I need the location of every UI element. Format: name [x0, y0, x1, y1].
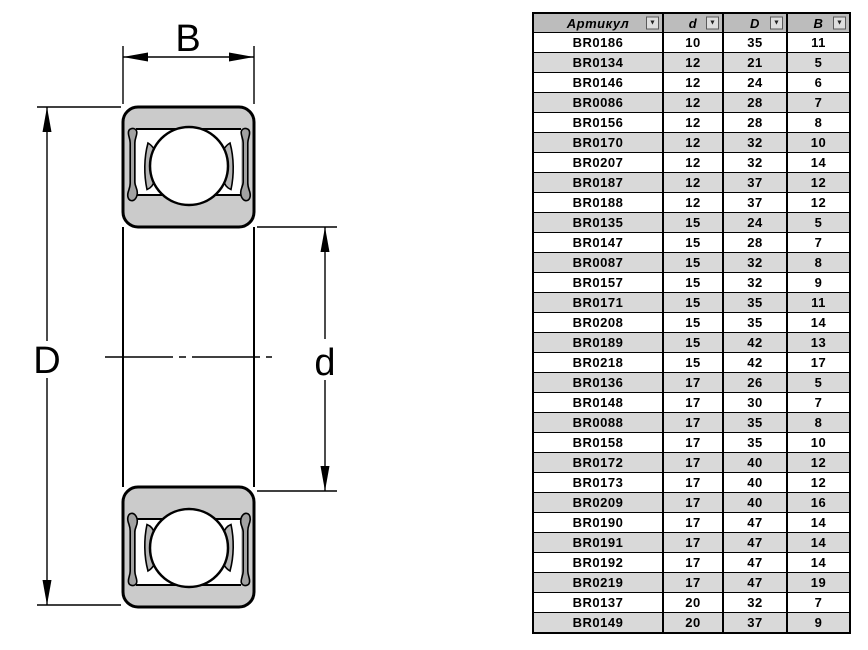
cell-value: 28	[723, 93, 787, 113]
cell-article: BR0192	[533, 553, 663, 573]
cell-value: 17	[663, 453, 723, 473]
cell-value: 35	[723, 293, 787, 313]
cell-article: BR0148	[533, 393, 663, 413]
cell-article: BR0158	[533, 433, 663, 453]
cell-value: 21	[723, 53, 787, 73]
cell-value: 12	[787, 173, 850, 193]
cell-value: 6	[787, 73, 850, 93]
cell-article: BR0171	[533, 293, 663, 313]
cell-article: BR0189	[533, 333, 663, 353]
cell-article: BR0156	[533, 113, 663, 133]
cell-value: 35	[723, 413, 787, 433]
chevron-down-icon: ▼	[836, 20, 843, 27]
bearing-diagram: B D d	[0, 0, 520, 650]
page: B D d	[0, 0, 868, 650]
cell-value: 24	[723, 73, 787, 93]
cell-value: 7	[787, 93, 850, 113]
table-row: BR013515245	[533, 213, 850, 233]
cell-article: BR0207	[533, 153, 663, 173]
cell-article: BR0087	[533, 253, 663, 273]
cell-value: 17	[663, 373, 723, 393]
cell-value: 26	[723, 373, 787, 393]
cell-value: 17	[663, 573, 723, 593]
cell-article: BR0170	[533, 133, 663, 153]
cell-value: 35	[723, 33, 787, 53]
cell-value: 8	[787, 113, 850, 133]
cell-article: BR0149	[533, 613, 663, 634]
table-row: BR0188123712	[533, 193, 850, 213]
table-row: BR0189154213	[533, 333, 850, 353]
column-header-d: d▼	[663, 13, 723, 33]
cell-value: 11	[787, 33, 850, 53]
cell-value: 8	[787, 413, 850, 433]
cell-value: 15	[663, 313, 723, 333]
cell-value: 15	[663, 253, 723, 273]
cell-value: 17	[663, 473, 723, 493]
cell-article: BR0136	[533, 373, 663, 393]
cell-value: 32	[723, 153, 787, 173]
cell-value: 15	[663, 333, 723, 353]
cell-value: 47	[723, 533, 787, 553]
cell-article: BR0187	[533, 173, 663, 193]
table-row: BR0191174714	[533, 533, 850, 553]
cell-value: 10	[787, 433, 850, 453]
bearing-diagram-svg: B D d	[0, 0, 520, 650]
table-row: BR014612246	[533, 73, 850, 93]
dimension-D: D	[33, 107, 121, 605]
arrowhead-up-icon	[321, 227, 330, 252]
table-row: BR0190174714	[533, 513, 850, 533]
arrowhead-down-icon	[321, 466, 330, 491]
table-row: BR015612288	[533, 113, 850, 133]
cell-value: 40	[723, 493, 787, 513]
cell-value: 47	[723, 573, 787, 593]
cell-article: BR0157	[533, 273, 663, 293]
cell-value: 7	[787, 393, 850, 413]
spec-table-header: Артикул▼d▼D▼B▼	[533, 13, 850, 33]
cell-value: 9	[787, 273, 850, 293]
cell-value: 15	[663, 353, 723, 373]
cell-value: 7	[787, 593, 850, 613]
cell-value: 16	[787, 493, 850, 513]
table-row: BR0192174714	[533, 553, 850, 573]
cell-value: 35	[723, 313, 787, 333]
arrowhead-left-icon	[123, 53, 148, 62]
column-header-label: Артикул	[567, 16, 629, 31]
cell-article: BR0191	[533, 533, 663, 553]
table-row: BR0186103511	[533, 33, 850, 53]
cell-value: 14	[787, 313, 850, 333]
cell-value: 12	[663, 133, 723, 153]
table-row: BR0218154217	[533, 353, 850, 373]
column-header-label: D	[750, 16, 760, 31]
cell-article: BR0086	[533, 93, 663, 113]
table-row: BR0171153511	[533, 293, 850, 313]
table-row: BR008817358	[533, 413, 850, 433]
cell-value: 47	[723, 553, 787, 573]
cell-article: BR0190	[533, 513, 663, 533]
cell-value: 20	[663, 613, 723, 634]
table-row: BR0209174016	[533, 493, 850, 513]
cell-value: 28	[723, 113, 787, 133]
cell-article: BR0172	[533, 453, 663, 473]
cell-value: 15	[663, 213, 723, 233]
cell-value: 9	[787, 613, 850, 634]
cell-value: 5	[787, 213, 850, 233]
column-header-D-outer: D▼	[723, 13, 787, 33]
cell-value: 12	[663, 113, 723, 133]
cell-value: 37	[723, 193, 787, 213]
cell-value: 12	[787, 193, 850, 213]
bearing-section-bottom	[123, 487, 254, 607]
cell-value: 14	[787, 553, 850, 573]
column-header-article: Артикул▼	[533, 13, 663, 33]
cell-value: 12	[663, 93, 723, 113]
table-row: BR0172174012	[533, 453, 850, 473]
filter-dropdown-button[interactable]: ▼	[770, 17, 783, 30]
cell-article: BR0088	[533, 413, 663, 433]
cell-article: BR0218	[533, 353, 663, 373]
cell-value: 10	[787, 133, 850, 153]
cell-value: 17	[663, 533, 723, 553]
cell-value: 14	[787, 533, 850, 553]
cell-value: 11	[787, 293, 850, 313]
cell-value: 40	[723, 473, 787, 493]
cell-value: 7	[787, 233, 850, 253]
cell-value: 17	[663, 393, 723, 413]
cell-value: 17	[787, 353, 850, 373]
cell-value: 42	[723, 333, 787, 353]
column-header-label: B	[814, 16, 824, 31]
table-row: BR008715328	[533, 253, 850, 273]
cell-value: 12	[787, 473, 850, 493]
table-row: BR014920379	[533, 613, 850, 634]
cell-value: 47	[723, 513, 787, 533]
cell-value: 5	[787, 53, 850, 73]
cell-article: BR0137	[533, 593, 663, 613]
table-row: BR0187123712	[533, 173, 850, 193]
column-header-B-width: B▼	[787, 13, 850, 33]
cell-value: 8	[787, 253, 850, 273]
table-row: BR013412215	[533, 53, 850, 73]
table-row: BR014715287	[533, 233, 850, 253]
cell-value: 32	[723, 593, 787, 613]
cell-value: 37	[723, 613, 787, 634]
cell-value: 14	[787, 153, 850, 173]
cell-value: 42	[723, 353, 787, 373]
cell-value: 35	[723, 433, 787, 453]
cell-value: 24	[723, 213, 787, 233]
cell-value: 15	[663, 273, 723, 293]
arrowhead-right-icon	[229, 53, 254, 62]
cell-value: 12	[663, 53, 723, 73]
table-row: BR0208153514	[533, 313, 850, 333]
table-row: BR008612287	[533, 93, 850, 113]
table-row: BR0158173510	[533, 433, 850, 453]
arrowhead-down-icon	[43, 580, 52, 605]
filter-dropdown-button[interactable]: ▼	[706, 17, 719, 30]
cell-article: BR0147	[533, 233, 663, 253]
label-D: D	[33, 340, 60, 382]
table-row: BR014817307	[533, 393, 850, 413]
table-row: BR0207123214	[533, 153, 850, 173]
table-row: BR013720327	[533, 593, 850, 613]
filter-dropdown-button[interactable]: ▼	[646, 17, 659, 30]
cell-value: 12	[663, 193, 723, 213]
chevron-down-icon: ▼	[773, 20, 780, 27]
cell-value: 37	[723, 173, 787, 193]
cell-article: BR0188	[533, 193, 663, 213]
table-row: BR013617265	[533, 373, 850, 393]
bearing-section-top	[123, 107, 254, 227]
cell-value: 12	[663, 73, 723, 93]
cell-value: 17	[663, 553, 723, 573]
arrowhead-up-icon	[43, 107, 52, 132]
cell-value: 17	[663, 493, 723, 513]
cell-article: BR0134	[533, 53, 663, 73]
cell-value: 17	[663, 513, 723, 533]
cell-value: 12	[663, 173, 723, 193]
filter-dropdown-button[interactable]: ▼	[833, 17, 846, 30]
cell-value: 28	[723, 233, 787, 253]
spec-table-body: BR0186103511BR013412215BR014612246BR0086…	[533, 33, 850, 634]
table-row: BR0219174719	[533, 573, 850, 593]
cell-value: 15	[663, 233, 723, 253]
cell-article: BR0173	[533, 473, 663, 493]
dimension-d: d	[257, 227, 337, 491]
spec-table-container: Артикул▼d▼D▼B▼ BR0186103511BR013412215BR…	[532, 12, 851, 634]
cell-article: BR0186	[533, 33, 663, 53]
cell-value: 15	[663, 293, 723, 313]
spec-table: Артикул▼d▼D▼B▼ BR0186103511BR013412215BR…	[532, 12, 851, 634]
cell-value: 13	[787, 333, 850, 353]
chevron-down-icon: ▼	[709, 20, 716, 27]
table-row: BR0170123210	[533, 133, 850, 153]
cell-value: 10	[663, 33, 723, 53]
label-B: B	[175, 18, 200, 60]
table-row: BR015715329	[533, 273, 850, 293]
cell-value: 12	[663, 153, 723, 173]
cell-article: BR0208	[533, 313, 663, 333]
cell-value: 17	[663, 433, 723, 453]
cell-value: 40	[723, 453, 787, 473]
cell-value: 5	[787, 373, 850, 393]
dimension-B: B	[123, 18, 254, 104]
cell-article: BR0209	[533, 493, 663, 513]
label-d: d	[314, 342, 335, 384]
cell-article: BR0219	[533, 573, 663, 593]
cell-value: 32	[723, 133, 787, 153]
column-header-label: d	[689, 16, 697, 31]
cell-value: 32	[723, 253, 787, 273]
cell-value: 32	[723, 273, 787, 293]
cell-value: 14	[787, 513, 850, 533]
cell-value: 20	[663, 593, 723, 613]
cell-article: BR0135	[533, 213, 663, 233]
table-row: BR0173174012	[533, 473, 850, 493]
cell-article: BR0146	[533, 73, 663, 93]
cell-value: 19	[787, 573, 850, 593]
cell-value: 12	[787, 453, 850, 473]
cell-value: 17	[663, 413, 723, 433]
chevron-down-icon: ▼	[649, 20, 656, 27]
cell-value: 30	[723, 393, 787, 413]
